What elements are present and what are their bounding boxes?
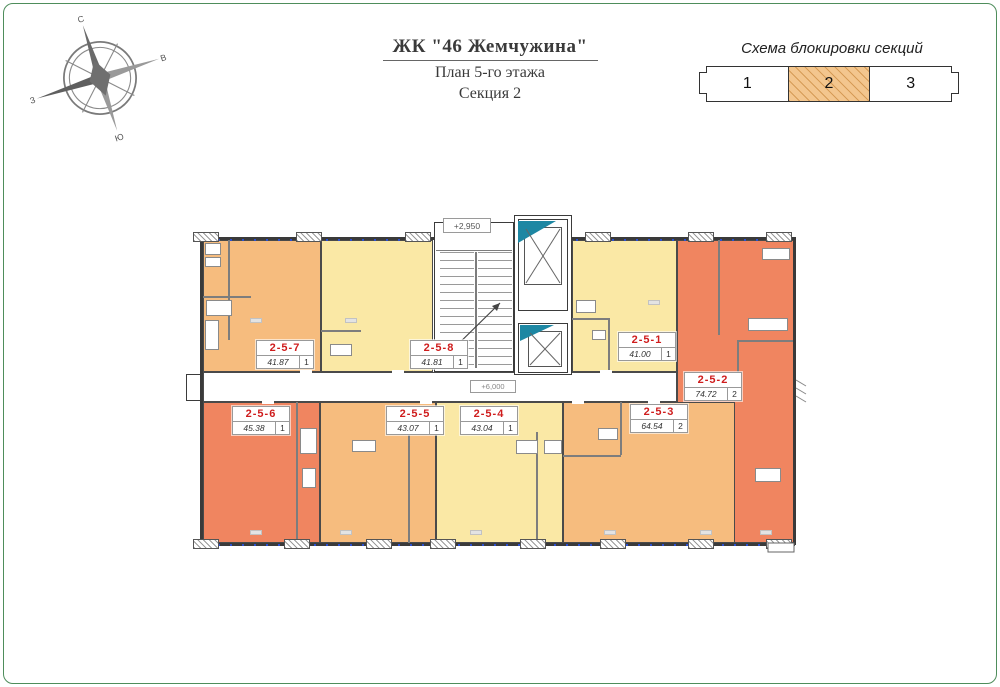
unit-area: 43.04 bbox=[461, 422, 503, 434]
blocking-scheme-title: Схема блокировки секций bbox=[712, 40, 952, 57]
unit-label-2-5-7: 2-5-7 41.871 bbox=[256, 340, 314, 369]
unit-rooms: 1 bbox=[453, 356, 467, 368]
stair-rail bbox=[475, 252, 477, 368]
dimension-tag bbox=[345, 318, 357, 323]
project-title: ЖК "46 Жемчужина" bbox=[383, 36, 598, 61]
kitchen-fixture bbox=[516, 440, 538, 454]
partition bbox=[563, 455, 621, 457]
bath-fixture bbox=[598, 428, 618, 440]
bath-fixture bbox=[302, 468, 316, 488]
unit-area: 41.00 bbox=[619, 348, 661, 360]
unit-label-2-5-1: 2-5-1 41.001 bbox=[618, 332, 676, 361]
dimension-tag bbox=[340, 530, 352, 535]
unit-area: 41.81 bbox=[411, 356, 453, 368]
unit-rooms: 1 bbox=[429, 422, 443, 434]
unit-area: 43.07 bbox=[387, 422, 429, 434]
wall-pier bbox=[520, 539, 546, 549]
unit-number: 2-5-7 bbox=[257, 341, 313, 356]
unit-number: 2-5-4 bbox=[461, 407, 517, 422]
unit-area: 45.38 bbox=[233, 422, 275, 434]
wall-pier bbox=[284, 539, 310, 549]
unit-rooms: 1 bbox=[661, 348, 675, 360]
partition bbox=[718, 240, 720, 335]
unit-area: 74.72 bbox=[685, 388, 727, 400]
partition bbox=[737, 340, 793, 342]
elevator-car-1 bbox=[524, 227, 562, 285]
door-opening bbox=[420, 399, 432, 404]
unit-number: 2-5-6 bbox=[233, 407, 289, 422]
dimension-tag bbox=[250, 530, 262, 535]
blocking-scheme-bar: 1 2 3 bbox=[706, 66, 952, 102]
kitchen-fixture bbox=[205, 257, 221, 267]
compass-n-label: С bbox=[76, 13, 85, 24]
floor-plan-sheet: С Ю В З ЖК "46 Жемчужина" План 5-го этаж… bbox=[0, 0, 1000, 687]
partition bbox=[228, 240, 230, 340]
unit-rooms: 1 bbox=[503, 422, 517, 434]
corridor bbox=[203, 372, 677, 402]
compass-e-label: В bbox=[159, 52, 168, 63]
door-opening bbox=[392, 370, 404, 375]
scheme-section-1: 1 bbox=[707, 67, 788, 101]
dimension-tag bbox=[470, 530, 482, 535]
unit-rooms: 2 bbox=[673, 420, 687, 432]
dimension-tag bbox=[250, 318, 262, 323]
partition bbox=[572, 318, 610, 320]
floor-subtitle: План 5-го этажа bbox=[330, 64, 650, 82]
partition bbox=[203, 296, 251, 298]
bath-fixture bbox=[330, 344, 352, 356]
wall-pier bbox=[193, 539, 219, 549]
scheme-section-2-active: 2 bbox=[788, 67, 870, 101]
stair-landing-line bbox=[436, 250, 512, 251]
unit-number: 2-5-5 bbox=[387, 407, 443, 422]
wall-pier bbox=[193, 232, 219, 242]
unit-area: 41.87 bbox=[257, 356, 299, 368]
unit-label-2-5-3: 2-5-3 64.542 bbox=[630, 404, 688, 433]
dimension-tag bbox=[700, 530, 712, 535]
unit-rooms: 1 bbox=[299, 356, 313, 368]
door-opening bbox=[262, 399, 274, 404]
partition bbox=[321, 330, 361, 332]
kitchen-fixture bbox=[762, 248, 790, 260]
partition bbox=[408, 432, 410, 543]
door-opening bbox=[300, 370, 312, 375]
door-opening bbox=[600, 370, 612, 375]
door-opening bbox=[572, 399, 584, 404]
kitchen-fixture bbox=[205, 243, 221, 255]
compass-s-label: Ю bbox=[114, 131, 126, 143]
stair-flight bbox=[478, 252, 512, 368]
bath-fixture bbox=[205, 320, 219, 350]
bath-fixture bbox=[576, 300, 596, 313]
wall-pier bbox=[766, 232, 792, 242]
partition bbox=[296, 402, 298, 543]
unit-label-2-5-8: 2-5-8 41.811 bbox=[410, 340, 468, 369]
unit-label-2-5-2: 2-5-2 74.722 bbox=[684, 372, 742, 401]
wall-pier bbox=[366, 539, 392, 549]
bath-fixture bbox=[206, 300, 232, 316]
wall-pier bbox=[585, 232, 611, 242]
exterior-wall-right bbox=[793, 237, 796, 545]
elevator-car-2 bbox=[528, 331, 562, 367]
section-subtitle: Секция 2 bbox=[330, 85, 650, 103]
compass-rose-icon: С Ю В З bbox=[40, 18, 160, 138]
unit-label-2-5-6: 2-5-6 45.381 bbox=[232, 406, 290, 435]
kitchen-fixture bbox=[300, 428, 317, 454]
wall-pier bbox=[766, 539, 792, 549]
unit-label-2-5-5: 2-5-5 43.071 bbox=[386, 406, 444, 435]
unit-label-2-5-4: 2-5-4 43.041 bbox=[460, 406, 518, 435]
title-block: ЖК "46 Жемчужина" План 5-го этажа Секция… bbox=[330, 36, 650, 103]
bath-fixture bbox=[352, 440, 376, 452]
partition bbox=[620, 402, 622, 455]
wall-pier bbox=[296, 232, 322, 242]
stair-elevation-label: +2,950 bbox=[443, 218, 491, 233]
wall-pier bbox=[688, 232, 714, 242]
wall-pier bbox=[688, 539, 714, 549]
unit-rooms: 2 bbox=[727, 388, 741, 400]
unit-area: 64.54 bbox=[631, 420, 673, 432]
kitchen-fixture bbox=[748, 318, 788, 331]
unit-number: 2-5-8 bbox=[411, 341, 467, 356]
kitchen-fixture bbox=[544, 440, 562, 454]
corridor-elevation-label: +6,000 bbox=[470, 380, 516, 393]
wall-pier bbox=[430, 539, 456, 549]
bath-fixture bbox=[755, 468, 781, 482]
dimension-tag bbox=[760, 530, 772, 535]
scheme-section-3: 3 bbox=[869, 67, 951, 101]
dimension-tag bbox=[648, 300, 660, 305]
unit-number: 2-5-3 bbox=[631, 405, 687, 420]
unit-number: 2-5-2 bbox=[685, 373, 741, 388]
exterior-wall-left bbox=[200, 237, 203, 545]
unit-number: 2-5-1 bbox=[619, 333, 675, 348]
partition bbox=[608, 318, 610, 372]
wall-pier bbox=[405, 232, 431, 242]
compass-w-label: З bbox=[29, 95, 37, 106]
dimension-tag bbox=[604, 530, 616, 535]
bath-fixture bbox=[592, 330, 606, 340]
wall-pier bbox=[600, 539, 626, 549]
unit-rooms: 1 bbox=[275, 422, 289, 434]
